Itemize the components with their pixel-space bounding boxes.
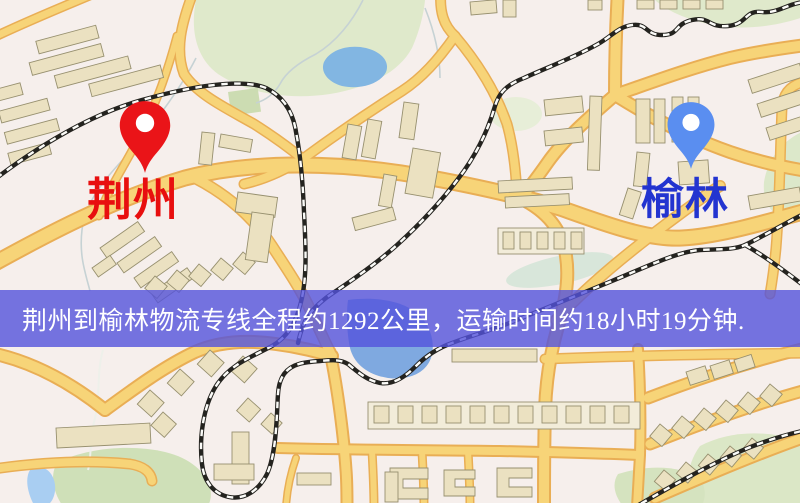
- route-info-banner: 荆州到榆林物流专线全程约1292公里，运输时间约18小时19分钟.: [0, 290, 800, 347]
- destination-map-pin-icon: [667, 98, 715, 173]
- street-map-background: [0, 0, 800, 503]
- pin-shape: [668, 102, 715, 169]
- route-map: 荆州 榆林 荆州到榆林物流专线全程约1292公里，运输时间约18小时19分钟.: [0, 0, 800, 503]
- destination-label: 榆林: [641, 179, 729, 222]
- pin-shape: [120, 101, 170, 173]
- origin-label: 荆州: [87, 178, 179, 223]
- origin-map-pin-icon: [119, 100, 171, 174]
- pin-hole: [682, 114, 699, 131]
- pin-hole: [136, 114, 154, 132]
- route-info-text: 荆州到榆林物流专线全程约1292公里，运输时间约18小时19分钟.: [22, 301, 745, 337]
